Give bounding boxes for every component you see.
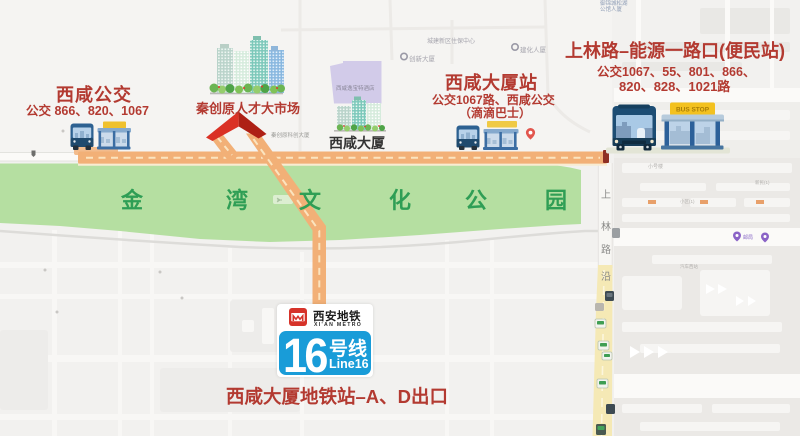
svg-text:BUS STOP: BUS STOP	[676, 107, 710, 114]
